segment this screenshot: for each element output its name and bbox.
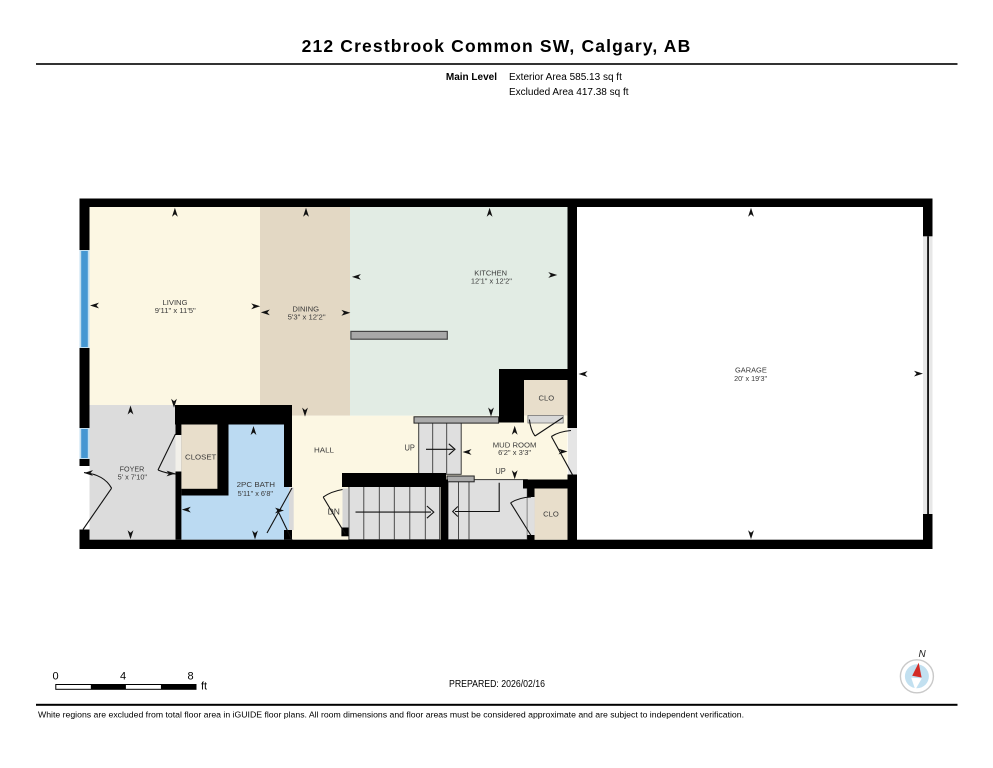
svg-text:Exterior Area 585.13 sq ft: Exterior Area 585.13 sq ft	[509, 72, 622, 83]
svg-text:212 Crestbrook Common SW, Calg: 212 Crestbrook Common SW, Calgary, AB	[302, 36, 692, 56]
svg-text:20' x 19'3": 20' x 19'3"	[734, 374, 767, 383]
svg-text:Excluded Area 417.38 sq ft: Excluded Area 417.38 sq ft	[509, 87, 629, 98]
svg-text:4: 4	[120, 670, 126, 682]
svg-text:5'3" x 12'2": 5'3" x 12'2"	[288, 313, 326, 322]
svg-text:UP: UP	[405, 444, 415, 453]
svg-text:Main Level: Main Level	[446, 72, 497, 83]
svg-text:CLO: CLO	[539, 394, 555, 403]
svg-text:CLOSET: CLOSET	[185, 453, 217, 462]
svg-text:UP: UP	[495, 467, 505, 476]
svg-text:ft: ft	[201, 681, 207, 693]
svg-text:DN: DN	[328, 508, 340, 517]
svg-text:9'11" x 11'5": 9'11" x 11'5"	[155, 306, 196, 315]
svg-text:2PC BATH: 2PC BATH	[237, 480, 275, 489]
svg-text:N: N	[919, 649, 927, 660]
svg-text:HALL: HALL	[314, 446, 334, 455]
svg-text:5' x 7'10": 5' x 7'10"	[118, 473, 148, 482]
svg-text:5'11" x 6'8": 5'11" x 6'8"	[238, 489, 274, 498]
svg-text:CLO: CLO	[543, 510, 559, 519]
svg-text:0: 0	[52, 670, 58, 682]
svg-text:8: 8	[187, 670, 193, 682]
svg-text:White regions are excluded fro: White regions are excluded from total fl…	[38, 709, 744, 719]
svg-text:12'1" x 12'2": 12'1" x 12'2"	[471, 277, 512, 286]
svg-text:PREPARED: 2026/02/16: PREPARED: 2026/02/16	[449, 679, 545, 690]
svg-text:6'2" x 3'3": 6'2" x 3'3"	[498, 448, 531, 457]
